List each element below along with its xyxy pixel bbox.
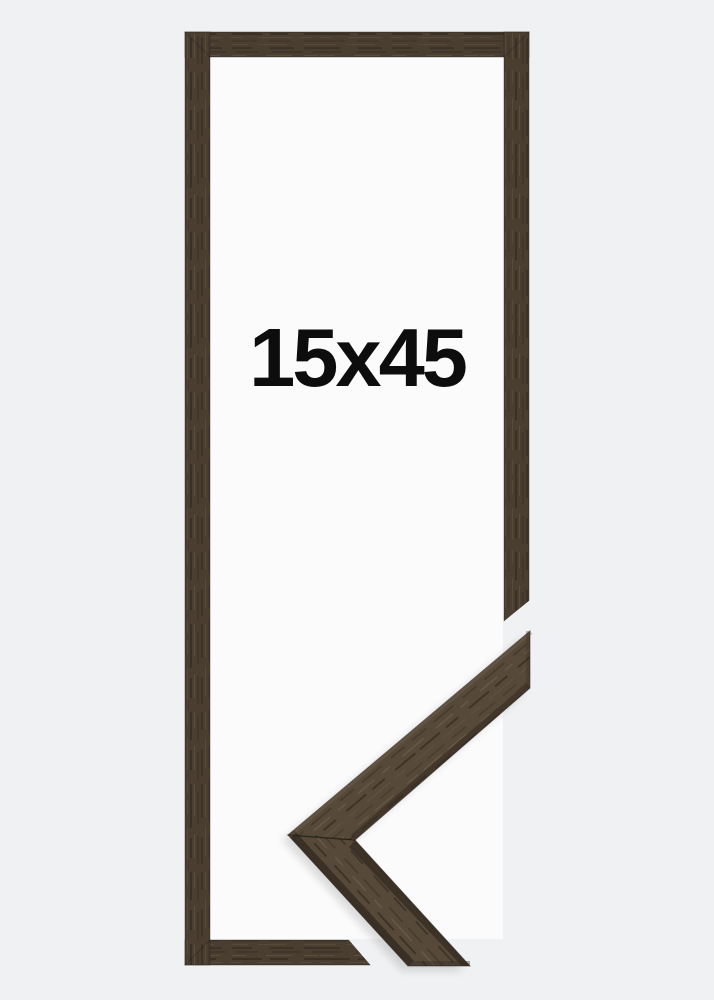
sample-end-grain-bottom: [408, 961, 470, 966]
frame-left-bar: [185, 32, 210, 965]
size-label: 15x45: [0, 316, 714, 399]
frame-illustration: [0, 0, 714, 1000]
frame-top-bar: [185, 32, 529, 57]
sample-end-grain-right: [526, 631, 530, 688]
frame-product-photo: 15x45: [0, 0, 714, 1000]
